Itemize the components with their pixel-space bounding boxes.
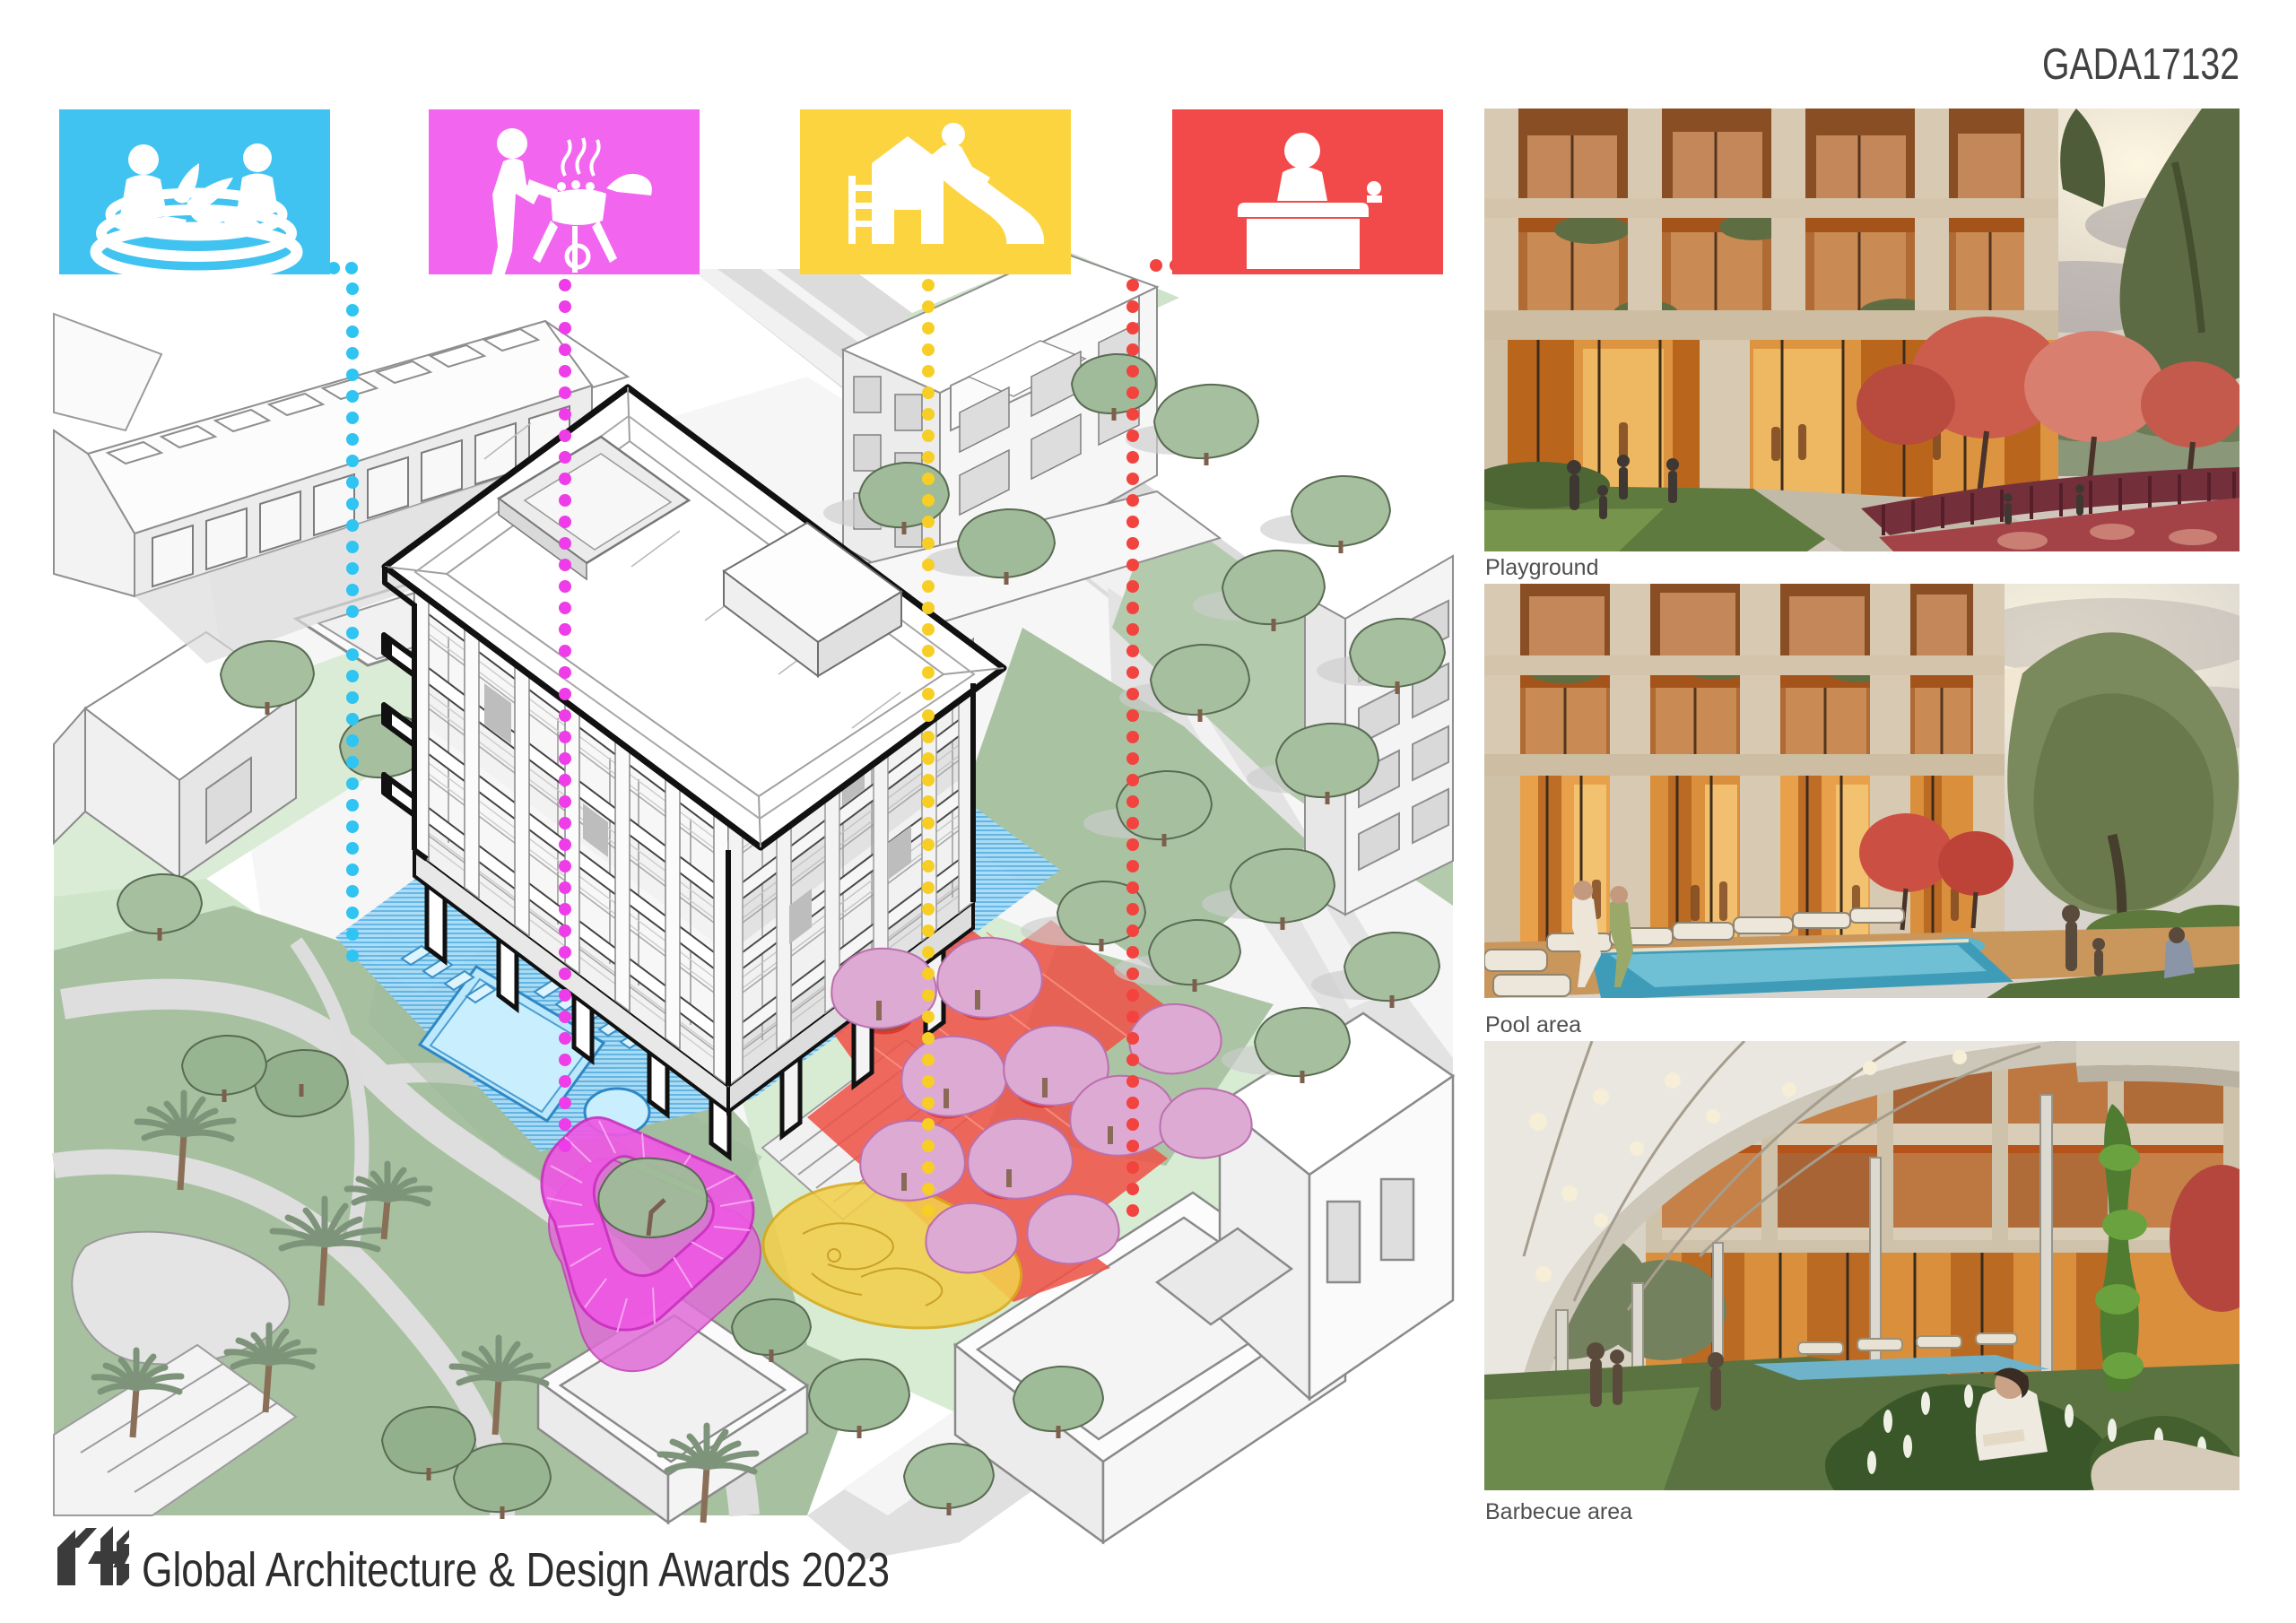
- svg-text:Barbecue area: Barbecue area: [1485, 1499, 1632, 1524]
- svg-text:GADA17132: GADA17132: [2042, 40, 2239, 89]
- svg-text:Global Architecture & Design A: Global Architecture & Design Awards 2023: [142, 1543, 890, 1597]
- svg-text:Pool area: Pool area: [1485, 1012, 1581, 1037]
- svg-text:Playground: Playground: [1485, 555, 1598, 580]
